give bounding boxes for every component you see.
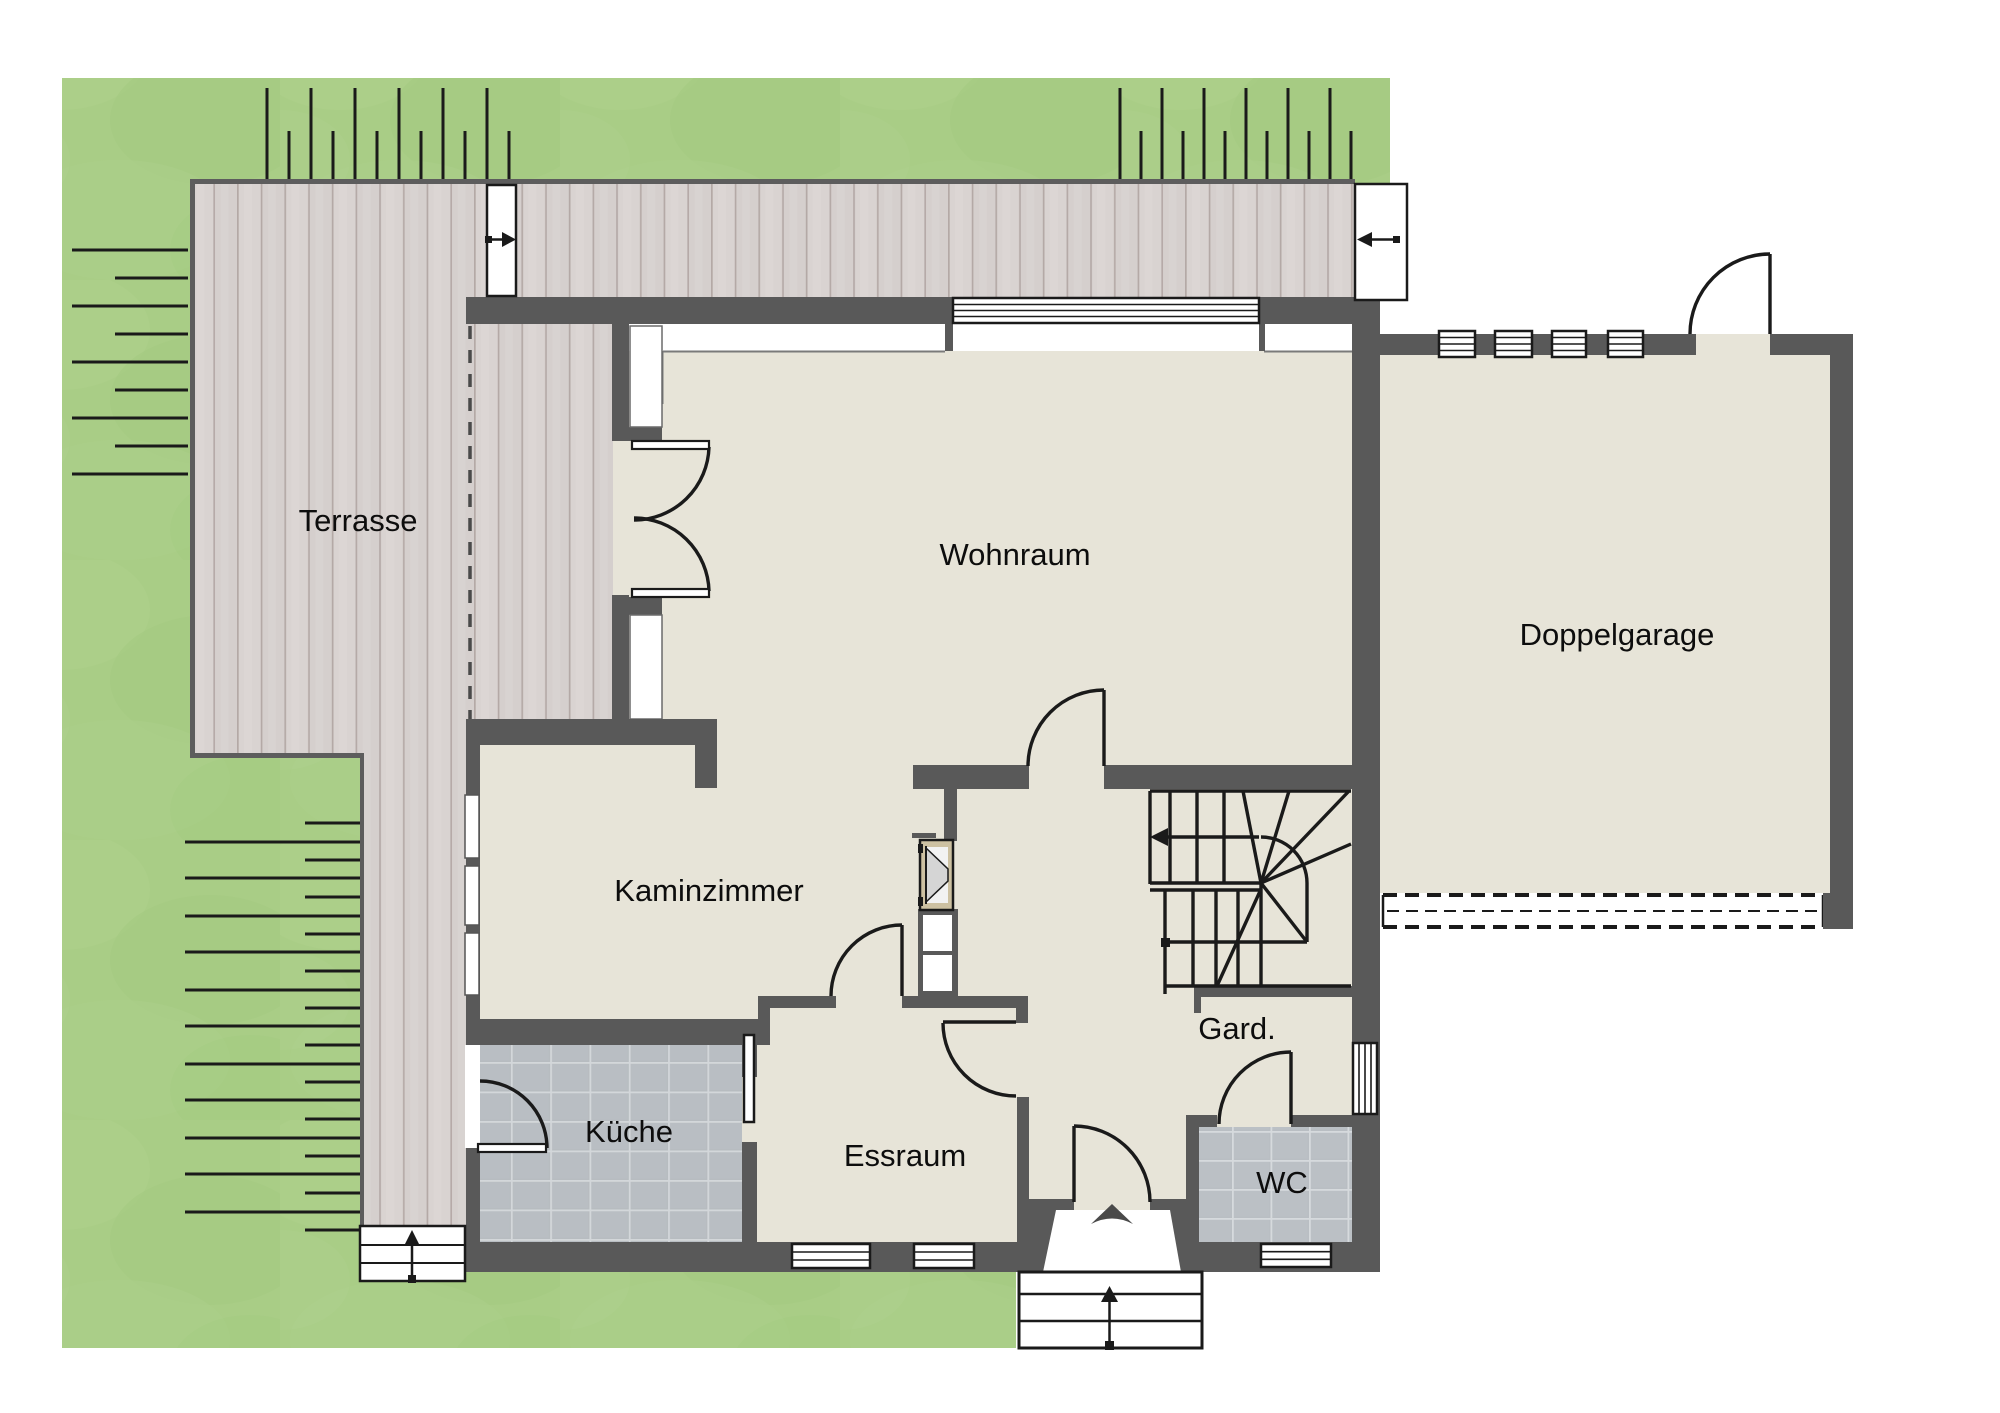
svg-text:Doppelgarage: Doppelgarage bbox=[1520, 617, 1715, 652]
svg-text:Essraum: Essraum bbox=[844, 1138, 966, 1173]
svg-text:Gard.: Gard. bbox=[1198, 1011, 1276, 1046]
svg-text:Wohnraum: Wohnraum bbox=[939, 537, 1090, 572]
svg-text:Terrasse: Terrasse bbox=[299, 503, 418, 538]
svg-text:Kaminzimmer: Kaminzimmer bbox=[614, 873, 803, 908]
svg-text:WC: WC bbox=[1256, 1165, 1308, 1200]
svg-text:Küche: Küche bbox=[585, 1114, 673, 1149]
